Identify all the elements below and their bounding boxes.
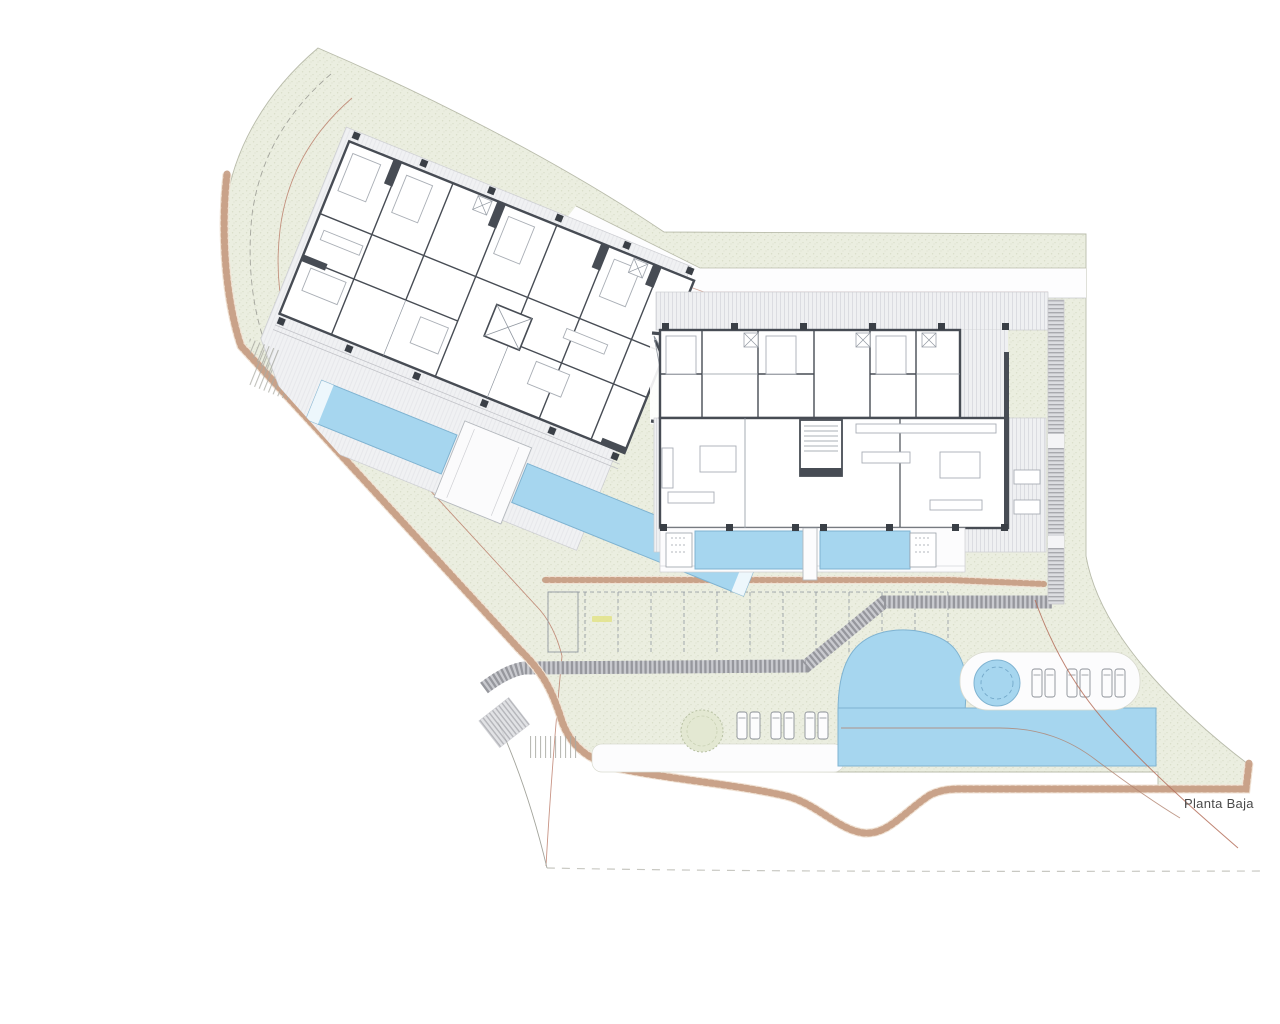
sun-lounger (1032, 669, 1042, 697)
sun-lounger (1045, 669, 1055, 697)
sun-lounger (1115, 669, 1125, 697)
right-rear-terrace (656, 292, 1048, 330)
sun-lounger (771, 712, 781, 739)
sun-lounger (1102, 669, 1112, 697)
bottom-boundary-dashed (547, 868, 1266, 871)
right-building (654, 292, 1048, 580)
right-pool-1 (695, 531, 805, 569)
sun-lounger (750, 712, 760, 739)
sun-lounger (818, 712, 828, 739)
sun-lounger (1080, 669, 1090, 697)
right-pool-2 (820, 531, 910, 569)
lagoon-pool-body (838, 708, 1156, 766)
elevation-mark (592, 616, 612, 622)
garden-stairs-lower (479, 698, 530, 748)
right-pool-walkway (803, 528, 817, 580)
floor-plan-canvas: Planta Baja (0, 0, 1280, 1024)
site-plan-svg (0, 0, 1280, 1024)
right-stair-core (800, 420, 842, 476)
ramp (1048, 300, 1064, 604)
garden-fence-hatch (528, 736, 580, 758)
sun-lounger (805, 712, 815, 739)
lower-walkway (592, 744, 844, 772)
sun-lounger (784, 712, 794, 739)
plan-title: Planta Baja (1184, 796, 1254, 811)
sun-lounger (737, 712, 747, 739)
